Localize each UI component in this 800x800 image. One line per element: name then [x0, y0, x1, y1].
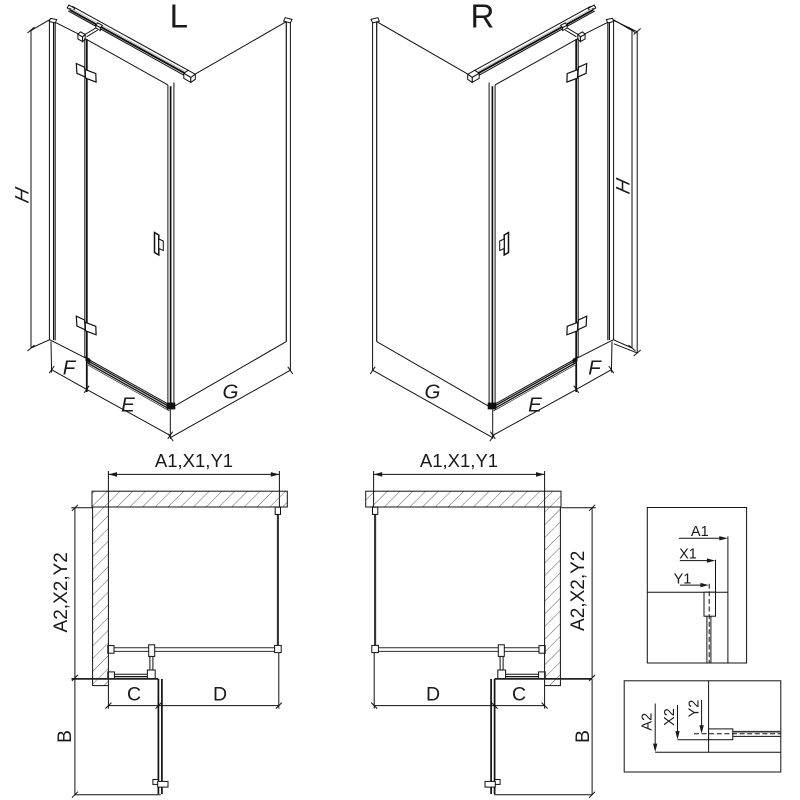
svg-text:F: F — [588, 357, 602, 380]
svg-text:D: D — [213, 683, 227, 705]
svg-text:L: L — [170, 0, 188, 35]
svg-text:H: H — [12, 185, 34, 205]
svg-text:H: H — [613, 176, 635, 196]
svg-text:F: F — [63, 357, 77, 380]
svg-text:D: D — [426, 683, 440, 705]
svg-text:C: C — [512, 683, 526, 705]
svg-text:C: C — [127, 683, 141, 705]
svg-text:B: B — [54, 730, 76, 743]
svg-text:B: B — [572, 730, 594, 743]
svg-text:Y2: Y2 — [686, 700, 702, 718]
svg-text:A2,X2,Y2: A2,X2,Y2 — [51, 552, 72, 632]
svg-text:G: G — [425, 381, 441, 404]
svg-text:E: E — [121, 394, 135, 417]
svg-text:X2: X2 — [662, 708, 678, 726]
svg-text:Y1: Y1 — [674, 571, 692, 587]
svg-text:A2: A2 — [639, 713, 655, 731]
svg-text:R: R — [470, 0, 494, 35]
svg-text:A1: A1 — [691, 524, 709, 540]
svg-text:A1,X1,Y1: A1,X1,Y1 — [420, 450, 498, 471]
svg-text:E: E — [528, 394, 542, 417]
svg-text:X1: X1 — [679, 547, 697, 563]
svg-text:A2,X2,Y2: A2,X2,Y2 — [568, 551, 589, 631]
svg-text:G: G — [223, 381, 239, 404]
svg-text:A1,X1,Y1: A1,X1,Y1 — [155, 450, 233, 471]
